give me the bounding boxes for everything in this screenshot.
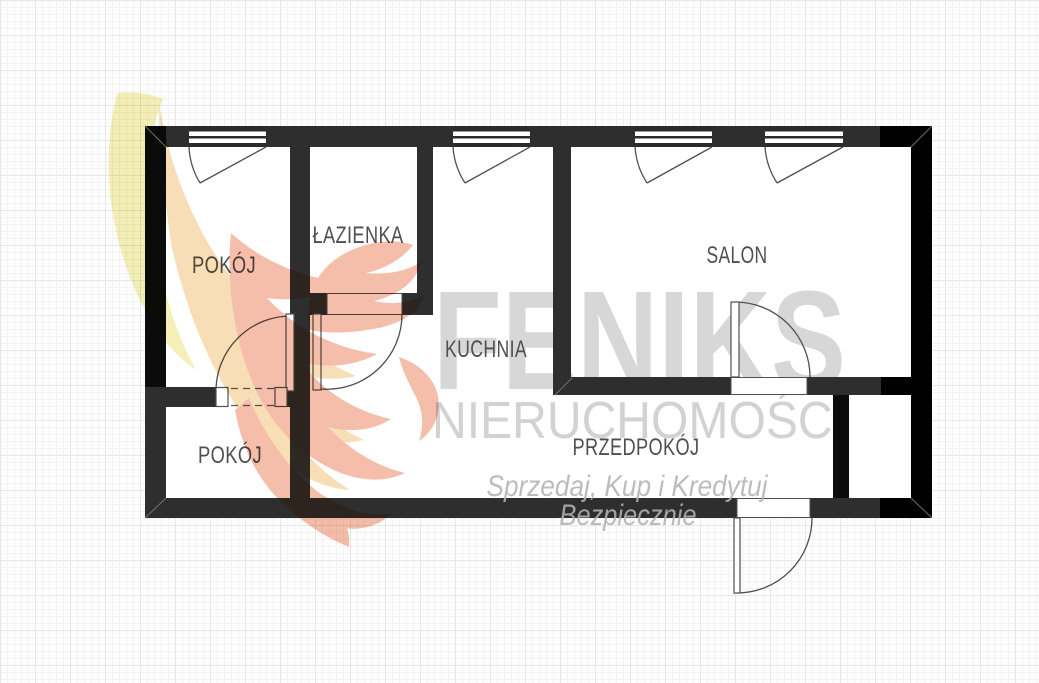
wall-segment — [712, 126, 765, 147]
wall-segment — [880, 498, 932, 518]
wall-segment — [881, 377, 931, 395]
slogan-line-2: Bezpiecznie — [560, 499, 697, 532]
wall-segment — [810, 498, 880, 518]
wall-segment — [807, 377, 881, 395]
wall-segment — [166, 387, 217, 407]
wall-segment — [911, 126, 932, 518]
wall-segment — [553, 147, 571, 377]
floor-plan-image: FENIKS NIERUCHOMOŚCI — [0, 0, 1039, 683]
wall-segment — [417, 147, 433, 293]
wall-segment — [266, 126, 453, 147]
watermark-slogan: Sprzedaj, Kup i Kredytuj Bezpiecznie — [487, 470, 769, 532]
room-label-przedpokoj: PRZEDPOKÓJ — [573, 434, 700, 461]
wall-segment — [553, 377, 731, 395]
wall-segment — [530, 126, 635, 147]
door-swing-symbol — [734, 499, 812, 594]
wall-segment — [843, 126, 880, 147]
room-label-salon: SALON — [707, 242, 768, 269]
wall-segment — [833, 395, 849, 498]
room-label-kuchnia: KUCHNIA — [445, 336, 527, 363]
